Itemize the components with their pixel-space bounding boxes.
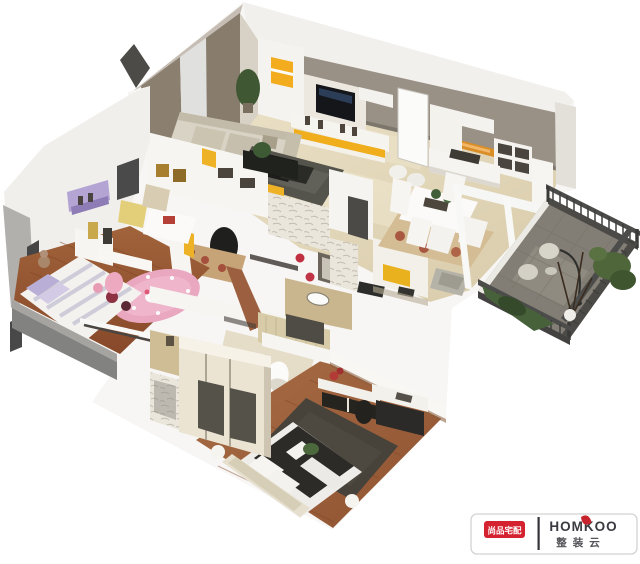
- svg-text:尚品宅配: 尚品宅配: [487, 526, 522, 536]
- svg-text:整装云: 整装云: [555, 536, 606, 549]
